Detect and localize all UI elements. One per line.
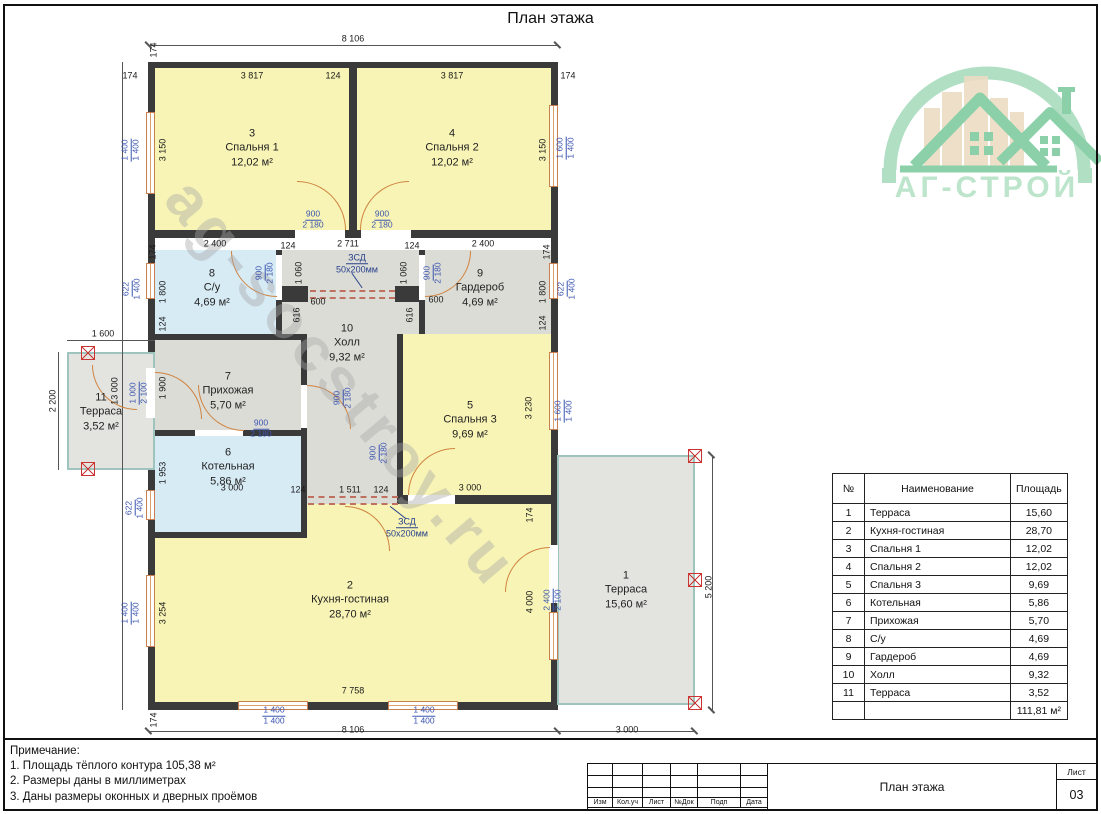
door-gap — [195, 430, 243, 436]
dim-label-opening: 6221 400 — [122, 277, 143, 300]
beam-label: ЗСД50х200мм — [336, 252, 378, 276]
dim-label: 2 200 — [49, 390, 58, 413]
dim-label-opening: 9002 180 — [370, 210, 393, 231]
room-label-bathroom: 8С/у4,69 м² — [194, 267, 230, 310]
table-row: 7Прихожая5,70 — [833, 612, 1068, 630]
dim-label-opening: 9002 180 — [423, 261, 444, 284]
dim-label-opening: 6221 400 — [557, 277, 578, 300]
table-row: 8С/у4,69 — [833, 630, 1068, 648]
dim-label: 3 817 — [241, 72, 264, 81]
room-label-hallway: 7Прихожая5,70 м² — [203, 370, 254, 413]
dim-label: 3 817 — [441, 72, 464, 81]
logo-graphic: АГ-СТРОЙ — [872, 20, 1101, 205]
column-marker — [81, 462, 95, 476]
dim-label: 3 000 — [616, 726, 639, 735]
dim-label: 600 — [310, 298, 325, 307]
tb-col-podp: Подп — [698, 798, 741, 808]
beam-dashed-line — [310, 290, 395, 292]
dim-label: 3 150 — [159, 139, 168, 162]
dim-label: 174 — [149, 244, 158, 259]
note-item: 1. Площадь тёплого контура 105,38 м² — [10, 759, 257, 774]
beam-label: ЗСД50х200мм — [386, 516, 428, 540]
dim-label: 1 060 — [295, 262, 304, 285]
table-row: 5Спальня 39,69 — [833, 576, 1068, 594]
dim-label: 1 953 — [159, 462, 168, 485]
dim-label: 1 800 — [159, 281, 168, 304]
tb-col-data: Дата — [741, 798, 768, 808]
table-total-value: 111,81 м² — [1011, 702, 1068, 720]
dim-label-opening: 1 6001 400 — [556, 136, 577, 159]
tb-col-dok: №Док — [671, 798, 698, 808]
dim-label: 3 000 — [459, 484, 482, 493]
window-symbol — [146, 575, 155, 647]
door-gap — [361, 230, 411, 238]
dim-label: 124 — [539, 315, 548, 330]
tb-col-izm: Изм — [588, 798, 613, 808]
dim-label: 174 — [543, 244, 552, 259]
room-label-kitchen: 2Кухня-гостиная28,70 м² — [311, 579, 389, 622]
room-label-hall: 10Холл9,32 м² — [329, 322, 365, 365]
table-row: 2Кухня-гостиная28,70 — [833, 522, 1068, 540]
room-label-wardrobe: 9Гардероб4,69 м² — [456, 267, 504, 310]
note-item: 2. Размеры даны в миллиметрах — [10, 774, 257, 789]
column-marker — [81, 346, 95, 360]
door-gap — [295, 230, 345, 238]
dim-label: 1 600 — [92, 330, 115, 339]
dim-label: 174 — [526, 507, 535, 522]
notes-title: Примечание: — [10, 744, 257, 759]
dim-label-opening: 1 4001 400 — [121, 138, 142, 161]
dim-label: 8 106 — [342, 35, 365, 44]
table-row: 3Спальня 112,02 — [833, 540, 1068, 558]
tb-col-list: Лист — [643, 798, 671, 808]
dim-label-opening: 9002 180 — [333, 386, 354, 409]
dim-label: 1 511 — [339, 486, 361, 495]
dim-label: 13 000 — [111, 377, 120, 405]
dimension-line — [148, 45, 558, 46]
company-logo: АГ-СТРОЙ — [872, 20, 1101, 210]
dimension-line — [67, 340, 155, 341]
dim-label-opening: 9002 180 — [301, 210, 324, 231]
sheet-number: 03 — [1057, 780, 1096, 809]
dim-label-opening: 9002 180 — [369, 441, 390, 464]
dim-label: 174 — [150, 712, 159, 727]
table-total-row: 111,81 м² — [833, 702, 1068, 720]
sheet-label: Лист — [1057, 764, 1096, 780]
dim-label: 174 — [122, 72, 137, 81]
tb-col-koluch: Кол.уч — [613, 798, 643, 808]
table-row: 1Терраса15,60 — [833, 504, 1068, 522]
dim-label-opening: 1 4001 400 — [262, 706, 285, 727]
dim-label-opening: 6221 400 — [125, 496, 146, 519]
dim-label: 5 200 — [705, 576, 714, 599]
dim-label-opening: 1 4001 400 — [121, 601, 142, 624]
title-block-doc-title: План этажа — [768, 764, 1057, 809]
room-label-bedroom1: 3Спальня 112,02 м² — [225, 127, 278, 170]
table-row: 6Котельная5,86 — [833, 594, 1068, 612]
beam-dashed-line — [308, 496, 398, 498]
dim-label: 1 900 — [159, 377, 168, 400]
dim-label-opening: 1 6001 400 — [554, 399, 575, 422]
window-symbol — [549, 612, 558, 660]
dim-label: 3 254 — [159, 602, 168, 625]
table-row: 10Холл9,32 — [833, 666, 1068, 684]
title-block: Изм Кол.уч Лист №Док Подп Дата План этаж… — [587, 763, 1097, 810]
drawing-area-divider — [3, 738, 1098, 740]
dim-label: 124 — [373, 486, 388, 495]
window-symbol — [146, 112, 155, 194]
col-header-num: № — [833, 474, 865, 504]
note-item: 3. Даны размеры оконных и дверных проёмо… — [10, 790, 257, 805]
dim-label: 124 — [280, 242, 295, 251]
dim-label-opening: 9002 180 — [249, 419, 272, 440]
title-block-grid: Изм Кол.уч Лист №Док Подп Дата — [588, 764, 768, 809]
col-header-name: Наименование — [865, 474, 1011, 504]
dim-label-opening: 1 4001 400 — [412, 706, 435, 727]
dim-label: 1 060 — [400, 262, 409, 285]
table-row: 9Гардероб4,69 — [833, 648, 1068, 666]
dim-label: 8 106 — [342, 726, 365, 735]
dim-label: 174 — [560, 72, 575, 81]
room-kitchen-upper — [307, 504, 551, 538]
areas-table: № Наименование Площадь 1Терраса15,60 2Ку… — [832, 473, 1068, 720]
table-row: 11Терраса3,52 — [833, 684, 1068, 702]
dim-label: 2 400 — [472, 240, 495, 249]
dimension-line — [58, 352, 59, 470]
dim-label-opening: 9002 180 — [255, 261, 276, 284]
dim-label: 2 400 — [204, 240, 227, 249]
dim-label: 124 — [290, 486, 305, 495]
col-header-area: Площадь — [1011, 474, 1068, 504]
dim-label: 124 — [325, 72, 340, 81]
dim-label: 600 — [428, 296, 443, 305]
page-title: План этажа — [0, 10, 1101, 28]
window-symbol — [146, 490, 155, 520]
dim-label: 3 000 — [221, 484, 244, 493]
notes: Примечание: 1. Площадь тёплого контура 1… — [10, 744, 257, 805]
column-marker — [688, 449, 702, 463]
dim-label: 2 711 — [337, 240, 359, 249]
table-row: 4Спальня 212,02 — [833, 558, 1068, 576]
column-marker — [688, 573, 702, 587]
dim-label: 616 — [293, 307, 302, 322]
dim-label: 3 230 — [525, 397, 534, 420]
room-label-terrace-right: 1Терраса15,60 м² — [605, 569, 647, 612]
door-gap — [408, 495, 455, 504]
dim-label: 124 — [159, 316, 168, 331]
room-label-bedroom3: 5Спальня 39,69 м² — [443, 399, 496, 442]
table-header-row: № Наименование Площадь — [833, 474, 1068, 504]
dim-label: 1 800 — [539, 281, 548, 304]
dim-label: 124 — [404, 242, 419, 251]
dim-label-opening: 1 0002 100 — [129, 381, 150, 404]
beam-dashed-line — [308, 503, 398, 505]
dim-label: 4 000 — [526, 591, 535, 614]
column-marker — [688, 696, 702, 710]
title-block-sheet: Лист 03 — [1057, 764, 1096, 809]
window-symbol — [146, 263, 155, 299]
dim-label: 174 — [150, 42, 159, 57]
room-label-bedroom2: 4Спальня 212,02 м² — [425, 127, 478, 170]
dim-label: 616 — [406, 307, 415, 322]
dim-label: 3 150 — [539, 139, 548, 162]
dim-label: 7 758 — [342, 687, 365, 696]
logo-text: АГ-СТРОЙ — [895, 170, 1079, 204]
dim-label-opening: 2 4002 100 — [543, 588, 564, 611]
